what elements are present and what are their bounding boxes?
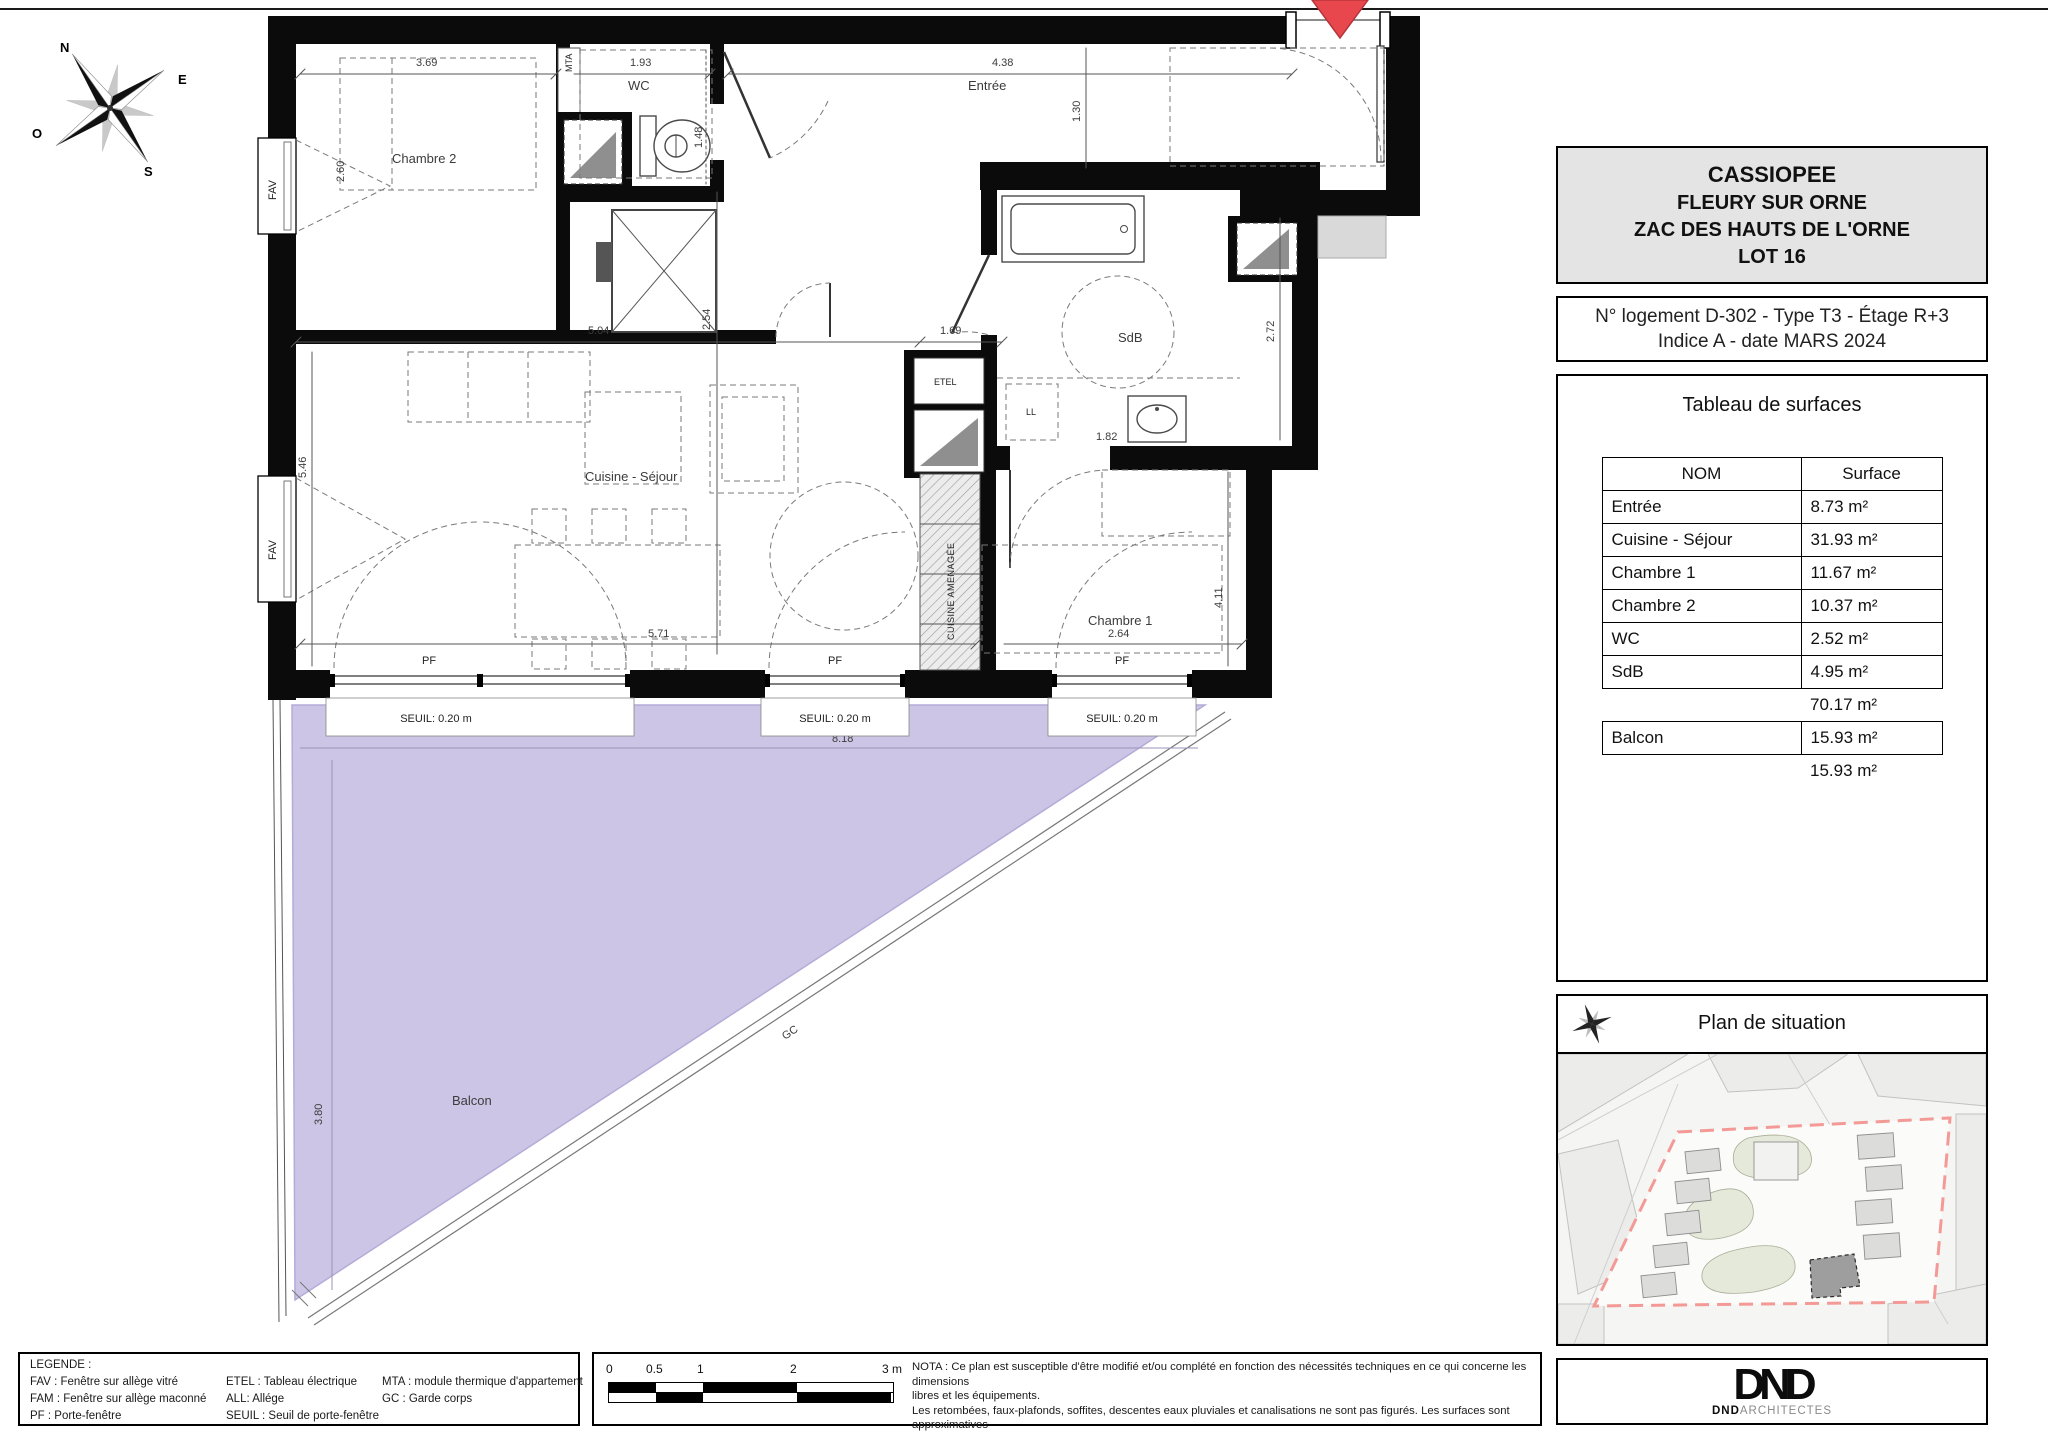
svg-text:3.69: 3.69	[416, 57, 437, 69]
svg-text:SEUIL: 0.20 m: SEUIL: 0.20 m	[1086, 713, 1158, 725]
logo-name-bold: DND	[1712, 1405, 1740, 1417]
col-header-surface: Surface	[1801, 458, 1942, 491]
cuisine-amenagee-label: CUISINE AMENAGÉE	[946, 542, 956, 640]
table-row: SdB4.95 m²	[1602, 656, 1942, 689]
svg-text:PF: PF	[422, 655, 436, 667]
legend-item: ETEL : Tableau électrique	[226, 1376, 357, 1388]
svg-text:2.72: 2.72	[1265, 321, 1277, 342]
room-label-sejour: Cuisine - Séjour	[585, 469, 678, 484]
situation-header: Plan de situation	[1558, 996, 1986, 1054]
washbasin-icon	[1128, 396, 1186, 442]
unit-info-line1: N° logement D-302 - Type T3 - Étage R+3	[1558, 306, 1986, 328]
legend-title: LEGENDE :	[30, 1359, 91, 1371]
bed-chambre2	[340, 58, 536, 190]
scale-bar-bottom	[608, 1392, 894, 1403]
scale-tick: 2	[790, 1362, 797, 1376]
room-label-sdb: SdB	[1118, 330, 1143, 345]
legend-item: SEUIL : Seuil de porte-fenêtre	[226, 1410, 379, 1422]
scale-tick: 1	[697, 1362, 704, 1376]
svg-text:FAV: FAV	[267, 539, 279, 560]
fav-window: FAV	[258, 476, 405, 602]
scale-tick: 3 m	[882, 1362, 902, 1376]
legend-block: LEGENDE : FAV : Fenêtre sur allège vitré…	[18, 1352, 580, 1426]
table-row: Chambre 210.37 m²	[1602, 590, 1942, 623]
doors	[724, 46, 1384, 568]
table-row: Chambre 111.67 m²	[1602, 557, 1942, 590]
floor-plan: GC 8.18 3.80 Balcon	[240, 0, 1440, 1350]
duct-symbol-icon	[1228, 216, 1310, 282]
compass-east-label: E	[178, 72, 187, 87]
walls	[268, 12, 1420, 700]
dnd-logo-icon: DND	[1733, 1366, 1810, 1404]
scale-tick: 0.5	[646, 1362, 663, 1376]
room-label-chambre2: Chambre 2	[392, 151, 456, 166]
entrance-arrow-icon	[1312, 0, 1368, 38]
surface-table: NOM Surface Entrée8.73 m² Cuisine - Séjo…	[1602, 457, 1943, 787]
mta-label: MTA	[564, 54, 574, 72]
svg-text:1.93: 1.93	[630, 57, 651, 69]
table-row: Cuisine - Séjour31.93 m²	[1602, 524, 1942, 557]
ll-label: LL	[1026, 407, 1036, 417]
svg-text:SEUIL: 0.20 m: SEUIL: 0.20 m	[799, 713, 871, 725]
svg-text:FAV: FAV	[267, 179, 279, 200]
fav-window: FAV	[258, 138, 390, 234]
balcony-area: GC 8.18 3.80 Balcon	[273, 700, 1231, 1325]
logo-name-rest: ARCHITECTES	[1740, 1405, 1832, 1417]
room-label-balcon: Balcon	[452, 1093, 492, 1108]
duct-symbol-icon	[914, 410, 984, 472]
situation-panel: Plan de situation	[1556, 994, 1988, 1346]
surface-table-panel: Tableau de surfaces NOM Surface Entrée8.…	[1556, 374, 1988, 982]
project-zac: ZAC DES HAUTS DE L'ORNE	[1558, 219, 1986, 242]
svg-text:1.48: 1.48	[693, 127, 705, 148]
svg-text:PF: PF	[828, 655, 842, 667]
dim-sdb-width: 1.82	[1096, 431, 1117, 443]
bathtub-icon	[1002, 196, 1144, 262]
round-table	[770, 482, 918, 630]
legend-item: FAV : Fenêtre sur allège vitré	[30, 1376, 178, 1388]
room-labels: Chambre 2 WC Entrée SdB Chambre 1 Cuisin…	[392, 78, 1152, 628]
svg-text:2.60: 2.60	[335, 161, 347, 182]
furniture	[340, 48, 1384, 669]
balcony-total-row: 15.93 m²	[1602, 755, 1942, 788]
legend-item: MTA : module thermique d'appartement	[382, 1376, 583, 1388]
svg-text:5.71: 5.71	[648, 628, 669, 640]
table-row: Entrée8.73 m²	[1602, 491, 1942, 524]
situation-title: Plan de situation	[1558, 1012, 1986, 1035]
wardrobe	[1102, 470, 1230, 536]
unit-info-block: N° logement D-302 - Type T3 - Étage R+3 …	[1556, 296, 1988, 362]
surface-table-title: Tableau de surfaces	[1558, 394, 1986, 417]
situation-map	[1558, 1054, 1986, 1344]
room-label-wc: WC	[628, 78, 650, 93]
compass-rose-icon: N E S O	[22, 28, 202, 188]
svg-text:1.69: 1.69	[940, 325, 961, 337]
svg-text:1.30: 1.30	[1071, 101, 1083, 122]
legend-item: ALL: Allége	[226, 1393, 284, 1405]
svg-text:2.64: 2.64	[1108, 628, 1129, 640]
project-city: FLEURY SUR ORNE	[1558, 192, 1986, 215]
etel-label: ETEL	[934, 377, 957, 387]
entry-closet	[1170, 48, 1384, 166]
duct-symbol-icon	[556, 112, 632, 194]
architect-logo-block: DND DNDARCHITECTES	[1556, 1358, 1988, 1425]
dim-balcony-depth: 3.80	[313, 1104, 325, 1125]
svg-text:2.54: 2.54	[701, 309, 713, 330]
sideboard	[408, 352, 590, 422]
legend-item: PF : Porte-fenêtre	[30, 1410, 121, 1422]
pf-window: PF SEUIL: 0.20 m	[326, 522, 634, 736]
legend-item: FAM : Fenêtre sur allège maconné	[30, 1393, 206, 1405]
svg-text:SEUIL: 0.20 m: SEUIL: 0.20 m	[400, 713, 472, 725]
svg-text:4.11: 4.11	[1213, 587, 1225, 608]
pf-window: PF SEUIL: 0.20 m	[761, 532, 909, 736]
floorplan-sheet: { "title_block": { "line1": "CASSIOPEE",…	[0, 0, 2048, 1431]
dining-table	[515, 545, 720, 637]
table-row: WC2.52 m²	[1602, 623, 1942, 656]
bed-chambre1	[982, 545, 1222, 653]
compass-south-label: S	[144, 164, 153, 179]
project-lot: LOT 16	[1558, 246, 1986, 269]
kitchen-strip: CUISINE AMENAGÉE	[920, 474, 980, 670]
svg-text:PF: PF	[1115, 655, 1129, 667]
svg-text:4.38: 4.38	[992, 57, 1013, 69]
gc-label: GC	[780, 1023, 800, 1042]
project-name: CASSIOPEE	[1558, 162, 1986, 188]
dimensions: 3.69 1.93 4.38 1.30 2.60 1.48 2.54 2.72 …	[291, 48, 1297, 666]
subtotal-row: 70.17 m²	[1602, 689, 1942, 722]
nota-text: NOTA : Ce plan est susceptible d'être mo…	[912, 1360, 1534, 1433]
compass-north-label: N	[60, 40, 69, 55]
room-label-entree: Entrée	[968, 78, 1006, 93]
scale-tick: 0	[606, 1362, 613, 1376]
col-header-nom: NOM	[1602, 458, 1801, 491]
legend-item: GC : Garde corps	[382, 1393, 472, 1405]
scale-nota-block: 0 0.5 1 2 3 m NOTA : Ce plan est suscept…	[592, 1352, 1542, 1426]
balcony-row: Balcon15.93 m²	[1602, 722, 1942, 755]
svg-text:5.04: 5.04	[588, 325, 609, 337]
unit-info-line2: Indice A - date MARS 2024	[1558, 331, 1986, 353]
armchair	[710, 385, 798, 493]
svg-text:5.46: 5.46	[297, 457, 309, 478]
compass-west-label: O	[32, 126, 42, 141]
room-label-chambre1: Chambre 1	[1088, 613, 1152, 628]
title-block: CASSIOPEE FLEURY SUR ORNE ZAC DES HAUTS …	[1556, 146, 1988, 284]
